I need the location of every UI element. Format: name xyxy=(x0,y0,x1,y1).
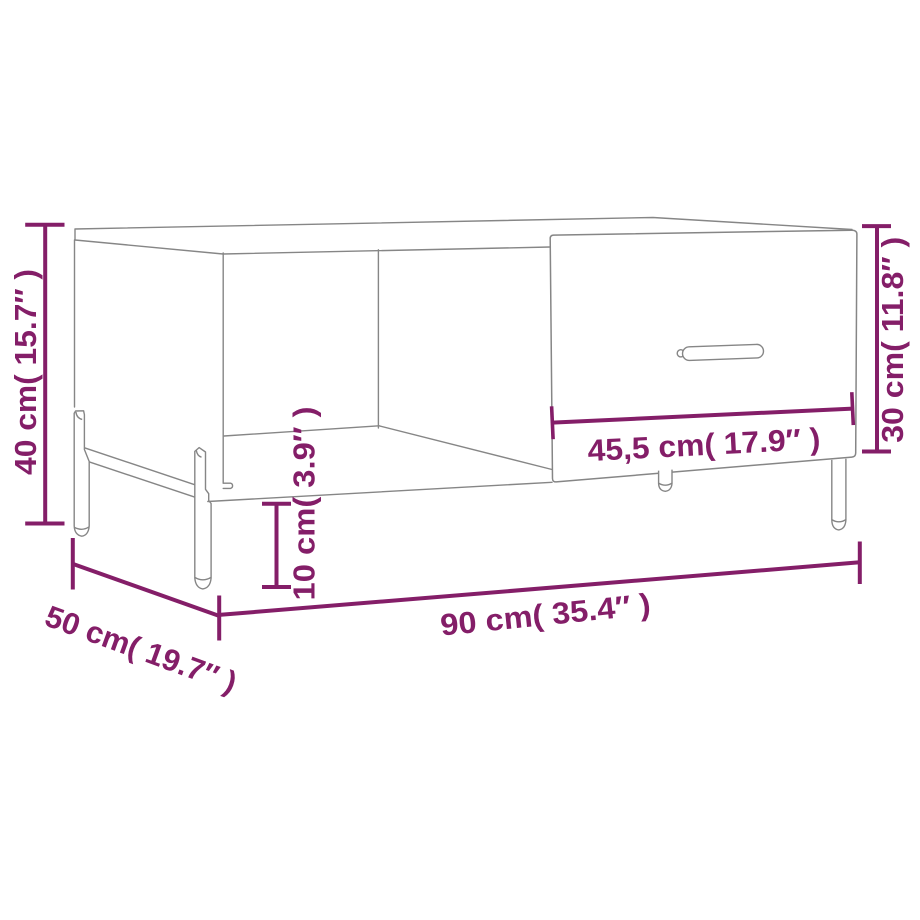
svg-text:10 cm( 3.9″ ): 10 cm( 3.9″ ) xyxy=(288,407,322,601)
svg-text:30 cm( 11.8″ ): 30 cm( 11.8″ ) xyxy=(876,237,910,443)
svg-text:40 cm( 15.7″ ): 40 cm( 15.7″ ) xyxy=(9,269,43,475)
